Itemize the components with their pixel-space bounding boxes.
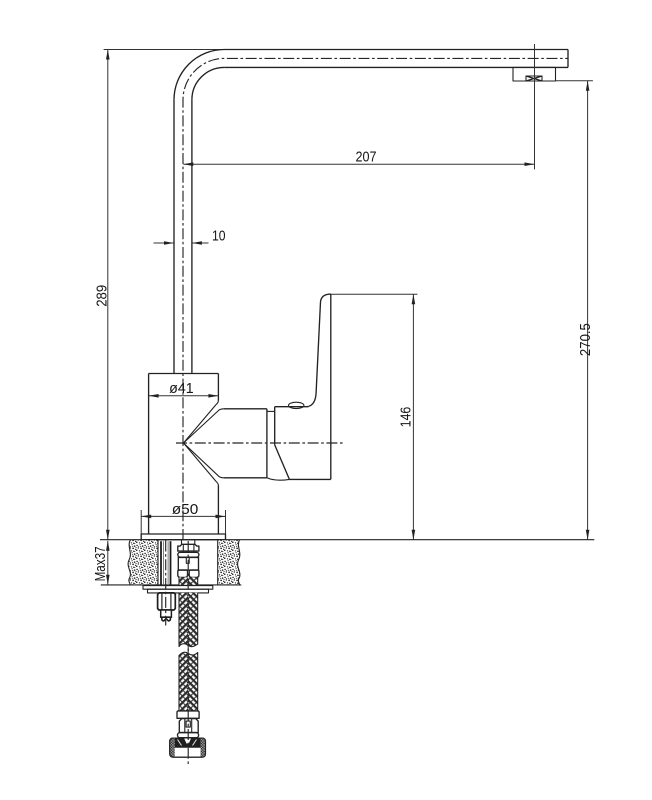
svg-text:10: 10 [212, 228, 226, 245]
svg-text:270.5: 270.5 [577, 323, 594, 356]
svg-text:289: 289 [93, 285, 110, 307]
svg-text:ø50: ø50 [172, 501, 199, 518]
svg-text:ø41: ø41 [169, 380, 194, 397]
svg-text:146: 146 [397, 407, 414, 428]
svg-text:207: 207 [356, 149, 377, 166]
svg-text:Max37: Max37 [92, 546, 109, 581]
